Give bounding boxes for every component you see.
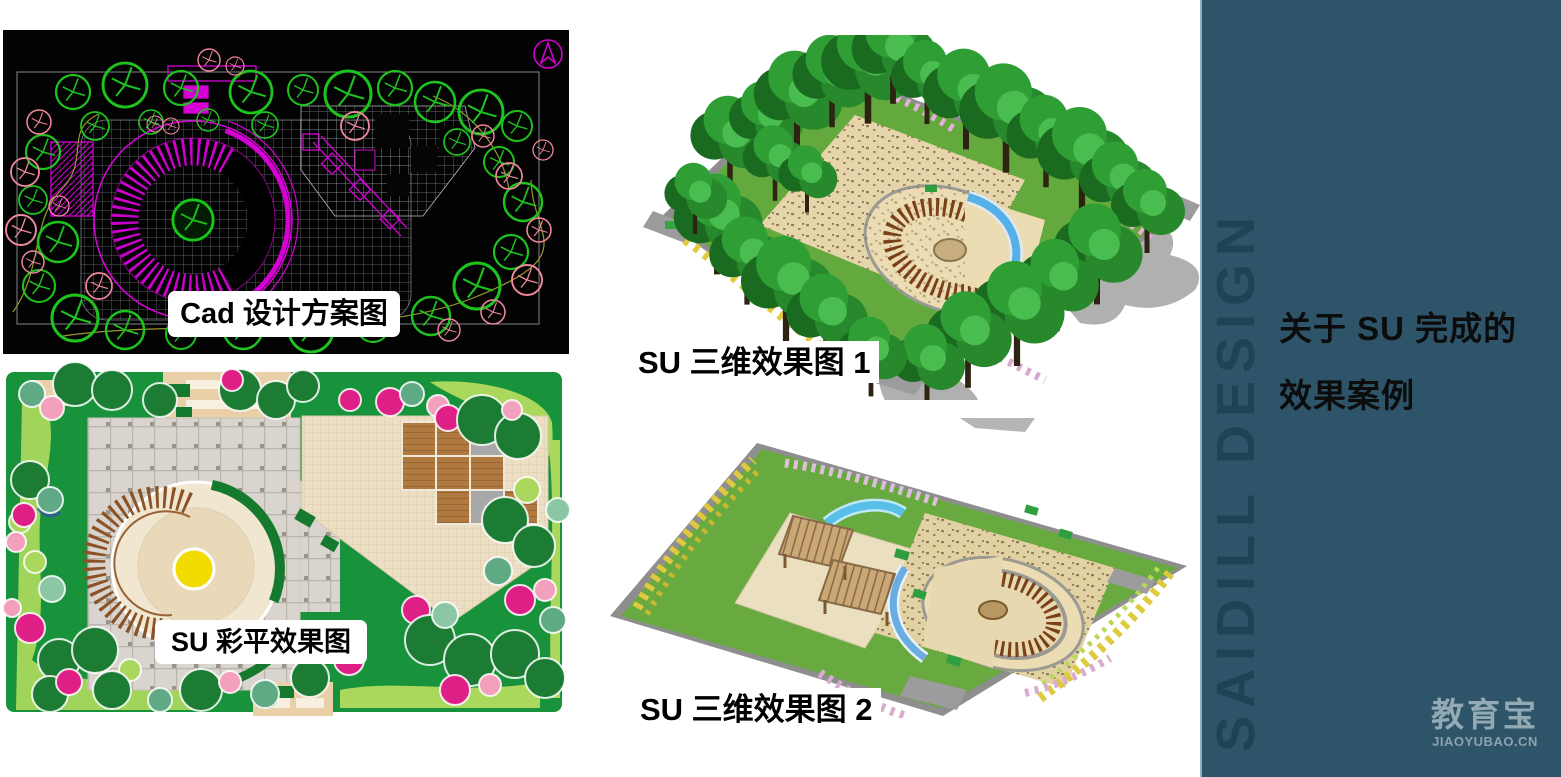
- caption-su-3d-render-2: SU 三维效果图 2: [632, 688, 881, 730]
- jiaoyubao-watermark: 教育宝 JIAOYUBAO.CN: [1424, 697, 1546, 749]
- vertical-brand-watermark: SAIDILL DESIGN: [1204, 209, 1268, 752]
- slide: Cad 设计方案图 SU 彩平效果图 SU 三维效果图 1 SU 三维效果图 2…: [0, 0, 1561, 777]
- caption-su-color-plan: SU 彩平效果图: [155, 620, 367, 664]
- caption-cad-plan: Cad 设计方案图: [168, 291, 400, 337]
- jiaoyubao-url-text: JIAOYUBAO.CN: [1424, 734, 1546, 749]
- su-color-plan-image: [0, 360, 572, 725]
- right-panel: SAIDILL DESIGN 关于 SU 完成的 效果案例 教育宝 JIAOYU…: [1200, 0, 1561, 777]
- jiaoyubao-logo-text: 教育宝: [1424, 697, 1546, 733]
- su-3d-render-2-drawing: [595, 418, 1195, 718]
- page-title-line1: 关于 SU 完成的: [1279, 295, 1517, 362]
- su-3d-render-2-image: [595, 418, 1195, 718]
- page-title: 关于 SU 完成的 效果案例: [1279, 295, 1517, 429]
- page-title-line2: 效果案例: [1279, 362, 1517, 429]
- su-color-plan-drawing: [0, 360, 572, 725]
- caption-su-3d-render-1: SU 三维效果图 1: [630, 341, 879, 383]
